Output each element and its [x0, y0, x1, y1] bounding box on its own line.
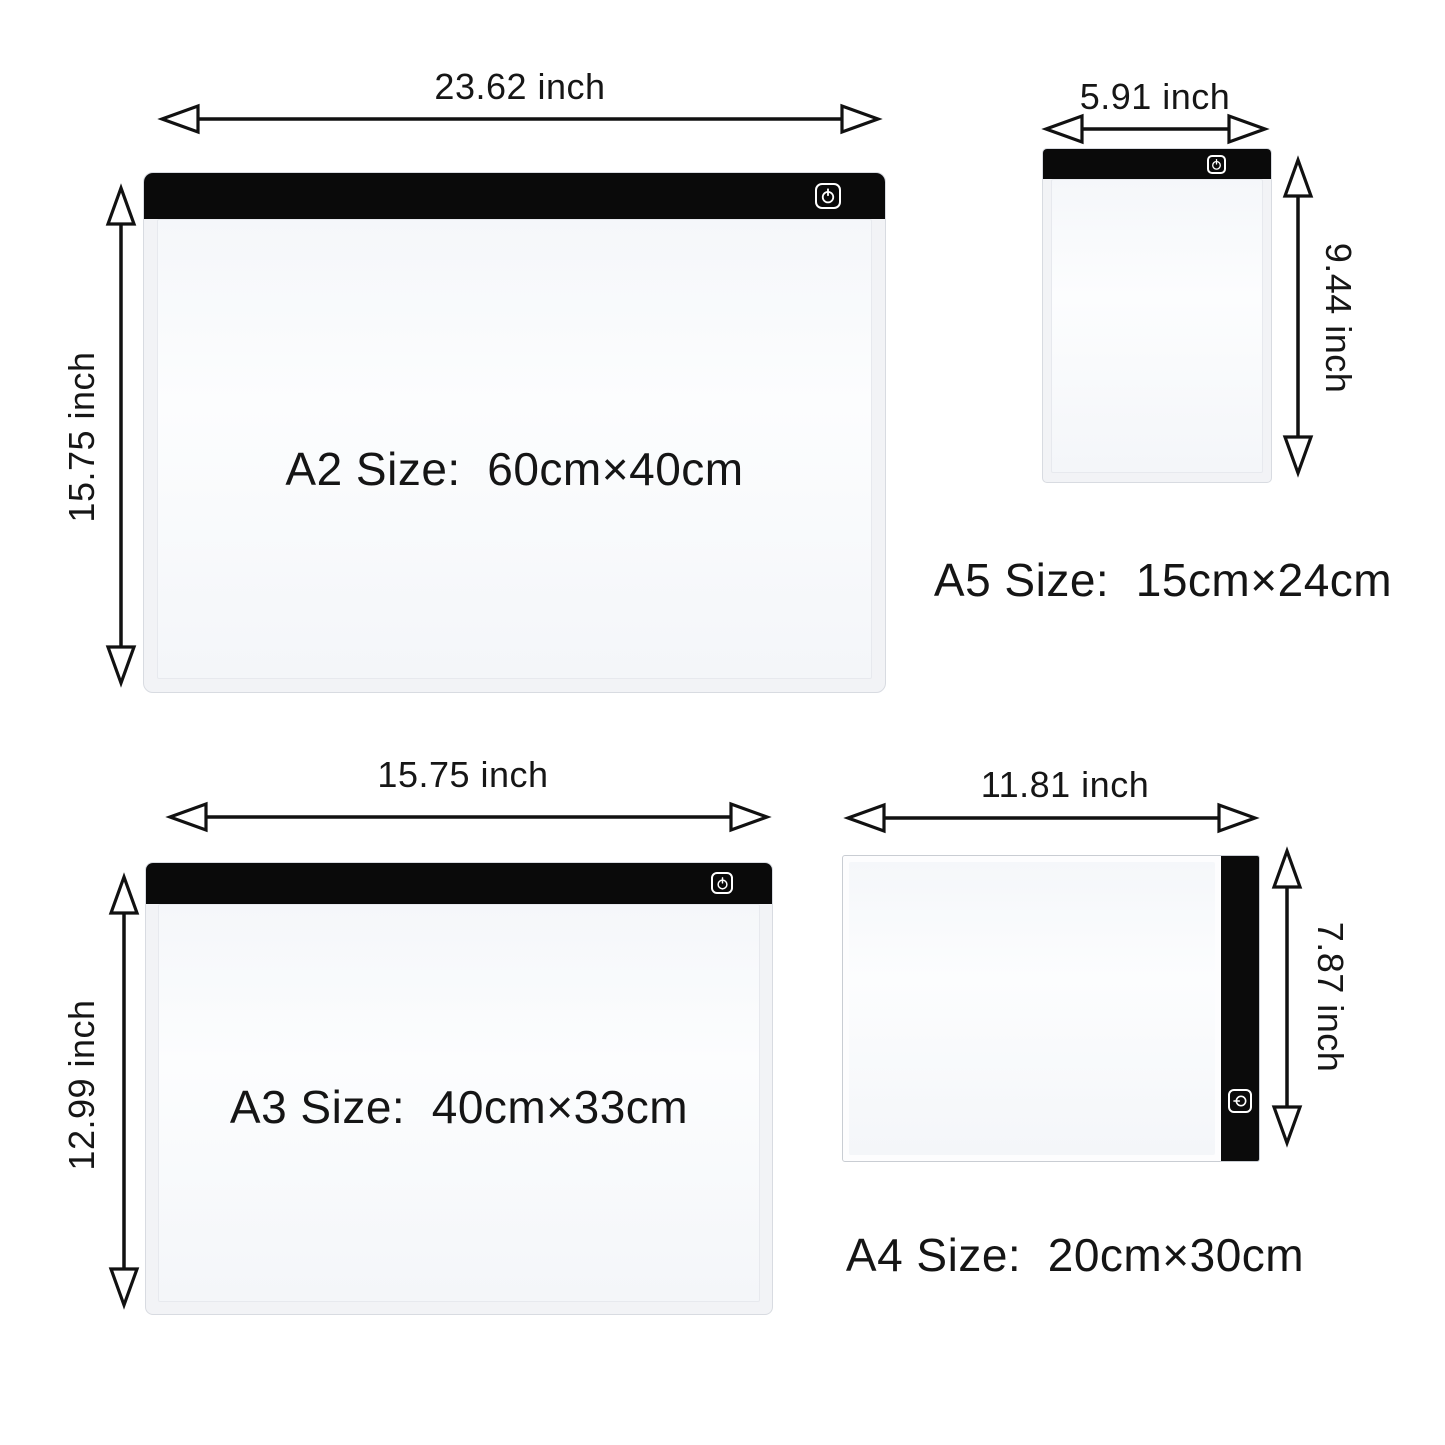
a4-width-arrow: [843, 800, 1260, 836]
a4-light-pad: [842, 855, 1260, 1162]
a2-width-arrow: [157, 101, 883, 137]
a2-height-label: 15.75 inch: [57, 337, 107, 537]
a4-height-arrow: [1269, 846, 1305, 1148]
power-icon: [715, 876, 730, 891]
a4-size-caption: A4 Size: 20cm×30cm: [775, 1226, 1375, 1284]
a4-side-bar: [1221, 856, 1259, 1161]
a3-height-label: 12.99 inch: [57, 985, 107, 1185]
a5-width-arrow: [1041, 111, 1270, 147]
a3-height-arrow: [106, 872, 142, 1310]
power-button: [711, 872, 733, 894]
a5-top-bar: [1043, 149, 1271, 179]
power-button: [1228, 1089, 1252, 1113]
a5-screen: [1051, 179, 1263, 473]
a5-size-caption: A5 Size: 15cm×24cm: [863, 551, 1445, 609]
a2-size-caption: A2 Size: 60cm×40cm: [144, 441, 885, 497]
a2-height-arrow: [103, 183, 139, 688]
a3-width-label: 15.75 inch: [313, 750, 613, 800]
product-size-diagram: 23.62 inch 15.75 inch A2 Size: 60cm×40cm…: [0, 0, 1445, 1445]
a3-size-caption: A3 Size: 40cm×33cm: [146, 1079, 772, 1135]
a3-light-pad: A3 Size: 40cm×33cm: [145, 862, 773, 1315]
a5-height-arrow: [1280, 155, 1316, 478]
power-icon: [1210, 158, 1223, 171]
power-button: [815, 183, 841, 209]
power-icon: [1232, 1093, 1248, 1109]
power-button: [1207, 155, 1226, 174]
a3-width-arrow: [165, 799, 772, 835]
a4-height-label: 7.87 inch: [1305, 897, 1355, 1097]
a2-light-pad: A2 Size: 60cm×40cm: [143, 172, 886, 693]
a2-top-bar: [144, 173, 885, 219]
a5-height-label: 9.44 inch: [1313, 218, 1363, 418]
a5-light-pad: [1042, 148, 1272, 483]
a3-top-bar: [146, 863, 772, 904]
power-icon: [819, 187, 837, 205]
a4-screen: [849, 862, 1215, 1155]
